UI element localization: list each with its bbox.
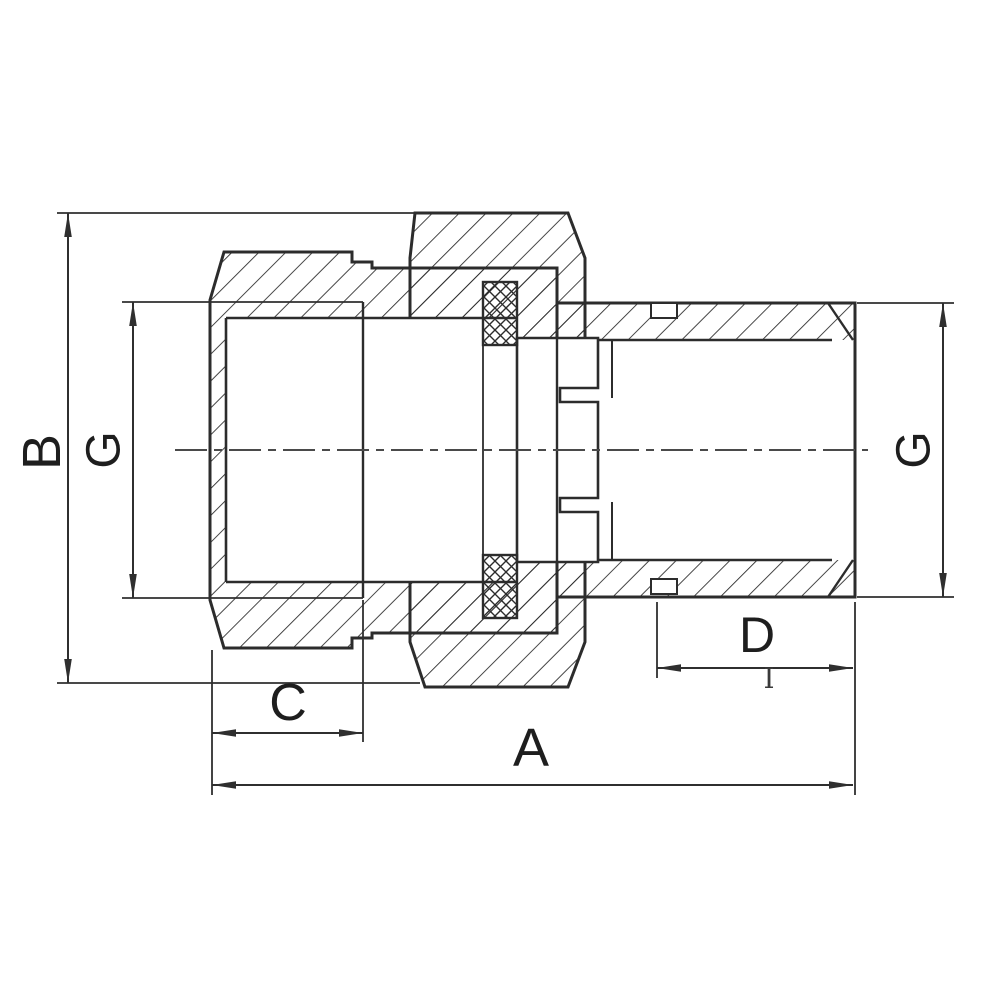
gasket-top bbox=[483, 282, 517, 345]
union-fitting-technical-drawing: B G G C D A I bbox=[0, 0, 1000, 1000]
dim-D-label: D bbox=[739, 607, 775, 663]
dim-G-right-label: G bbox=[888, 431, 941, 468]
drawing-canvas: B G G C D A I bbox=[0, 0, 1000, 1000]
dim-A-label: A bbox=[513, 718, 549, 778]
dim-G-left-label: G bbox=[78, 431, 131, 468]
thread-notch-top bbox=[651, 303, 677, 318]
thread-notch-bottom bbox=[651, 579, 677, 594]
gasket-bottom bbox=[483, 555, 517, 618]
dim-C-label: C bbox=[269, 674, 307, 732]
cursor-artifact: I bbox=[763, 662, 774, 695]
dim-B-label: B bbox=[12, 434, 72, 470]
